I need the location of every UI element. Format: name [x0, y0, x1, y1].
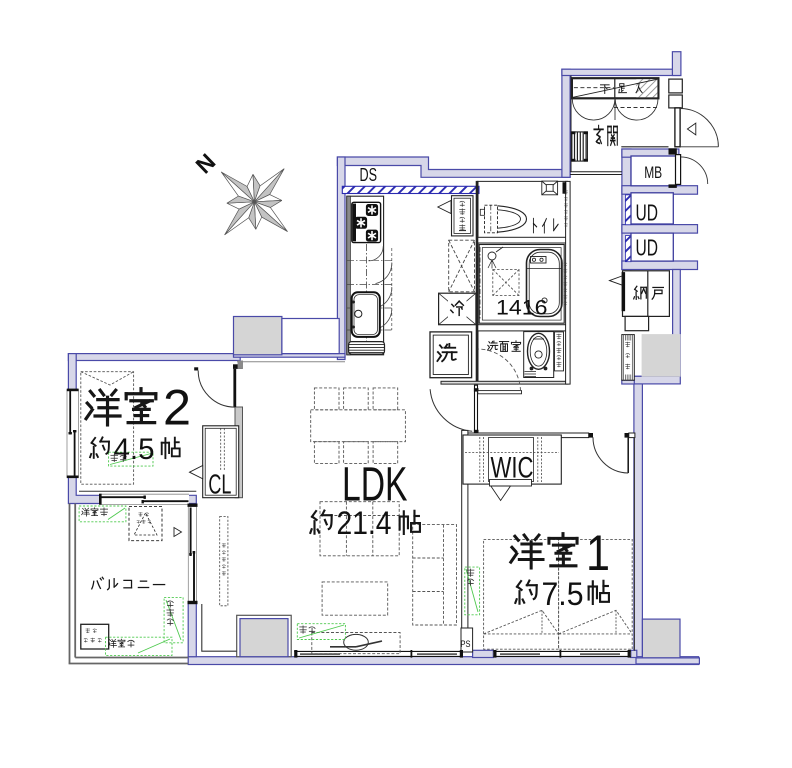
svg-text:1416: 1416: [496, 296, 548, 320]
svg-text:DS: DS: [360, 164, 378, 185]
svg-text:MB: MB: [644, 163, 662, 182]
svg-text:WIC: WIC: [491, 452, 534, 485]
svg-text:LDK: LDK: [342, 459, 408, 512]
svg-text:PS: PS: [461, 639, 471, 649]
svg-text:1: 1: [586, 525, 610, 581]
svg-text:4.5: 4.5: [114, 433, 155, 466]
svg-text:21.4: 21.4: [337, 505, 392, 541]
svg-text:CL: CL: [208, 469, 231, 500]
svg-text:UD: UD: [636, 200, 659, 226]
svg-text:2: 2: [163, 380, 191, 436]
svg-text:UD: UD: [636, 235, 659, 261]
svg-text:7.5: 7.5: [542, 576, 584, 612]
